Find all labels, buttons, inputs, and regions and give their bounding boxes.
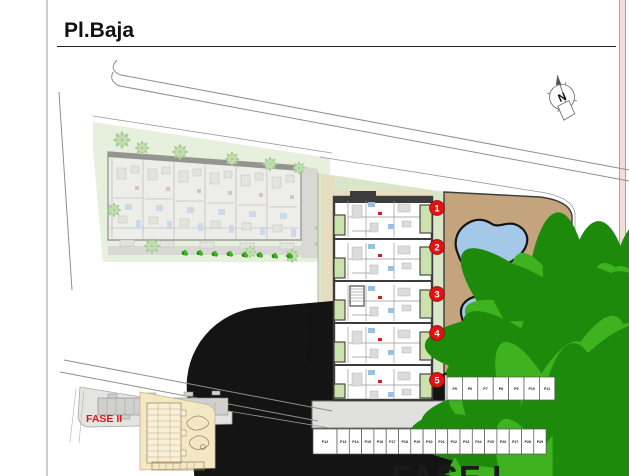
parking-space-label: P7 (483, 387, 487, 391)
parking-space-label: P26 (500, 440, 506, 444)
site-plan-drawing: Pl.Baja N (0, 0, 629, 476)
parking-space-label: P10 (528, 387, 534, 391)
parking-space-label: P5 (452, 387, 456, 391)
parking-space-label: P11 (544, 387, 550, 391)
key-phase1-building (147, 403, 186, 463)
svg-text:4: 4 (434, 329, 440, 340)
phase1-title: FASE I (392, 459, 503, 476)
parking-space-label: P14 (352, 440, 358, 444)
parking-space-label: P22 (451, 440, 457, 444)
parking-space-label: P13 (340, 440, 346, 444)
unit-number-badge: 4 (430, 326, 445, 341)
unit-number-badge: 5 (430, 373, 445, 388)
parking-space-label: P16 (377, 440, 383, 444)
svg-text:2: 2 (434, 243, 439, 254)
pool-parking-row: P5P6P7P8P9P10P11 (447, 377, 555, 400)
parking-space-label: P23 (463, 440, 469, 444)
parking-space-label: P20 (426, 440, 432, 444)
compass-north-icon: N (543, 73, 581, 121)
key-phase1-area (140, 392, 215, 470)
parking-space-label: P8 (499, 387, 503, 391)
site-plan-page: Pl.Baja N (0, 0, 629, 476)
page-title: Pl.Baja (64, 19, 134, 42)
escalera-b-building (334, 191, 432, 405)
parking-space-label: P18 (401, 440, 407, 444)
parking-space-label: P17 (389, 440, 395, 444)
svg-text:3: 3 (434, 290, 439, 301)
parking-space-label: P9 (514, 387, 518, 391)
parking-space-label: P27 (512, 440, 518, 444)
parking-space-label: P25 (488, 440, 494, 444)
stair-core (350, 286, 364, 306)
parking-space-label: P6 (468, 387, 472, 391)
parking-space-label: P28 (524, 440, 530, 444)
phase2-label: FASE II (86, 413, 122, 425)
svg-text:5: 5 (434, 376, 440, 387)
stairwell-label: ESCALERA B (304, 302, 314, 362)
phase2-building-area (93, 116, 332, 263)
parking-space-label: P21 (438, 440, 444, 444)
parking-space-label: P29 (537, 440, 543, 444)
svg-text:1: 1 (434, 204, 440, 215)
parking-space-label: P24 (475, 440, 481, 444)
street-parking-row: P12P13P14P15P16P17P18P19P20P21P22P23P24P… (313, 429, 546, 454)
unit-number-badge: 3 (430, 287, 445, 302)
parking-space-label: P12 (322, 440, 328, 444)
parking-space-label: P15 (365, 440, 371, 444)
parking-space-label: P19 (414, 440, 420, 444)
unit-number-badge: 1 (430, 201, 445, 216)
unit-number-badge: 2 (430, 240, 445, 255)
